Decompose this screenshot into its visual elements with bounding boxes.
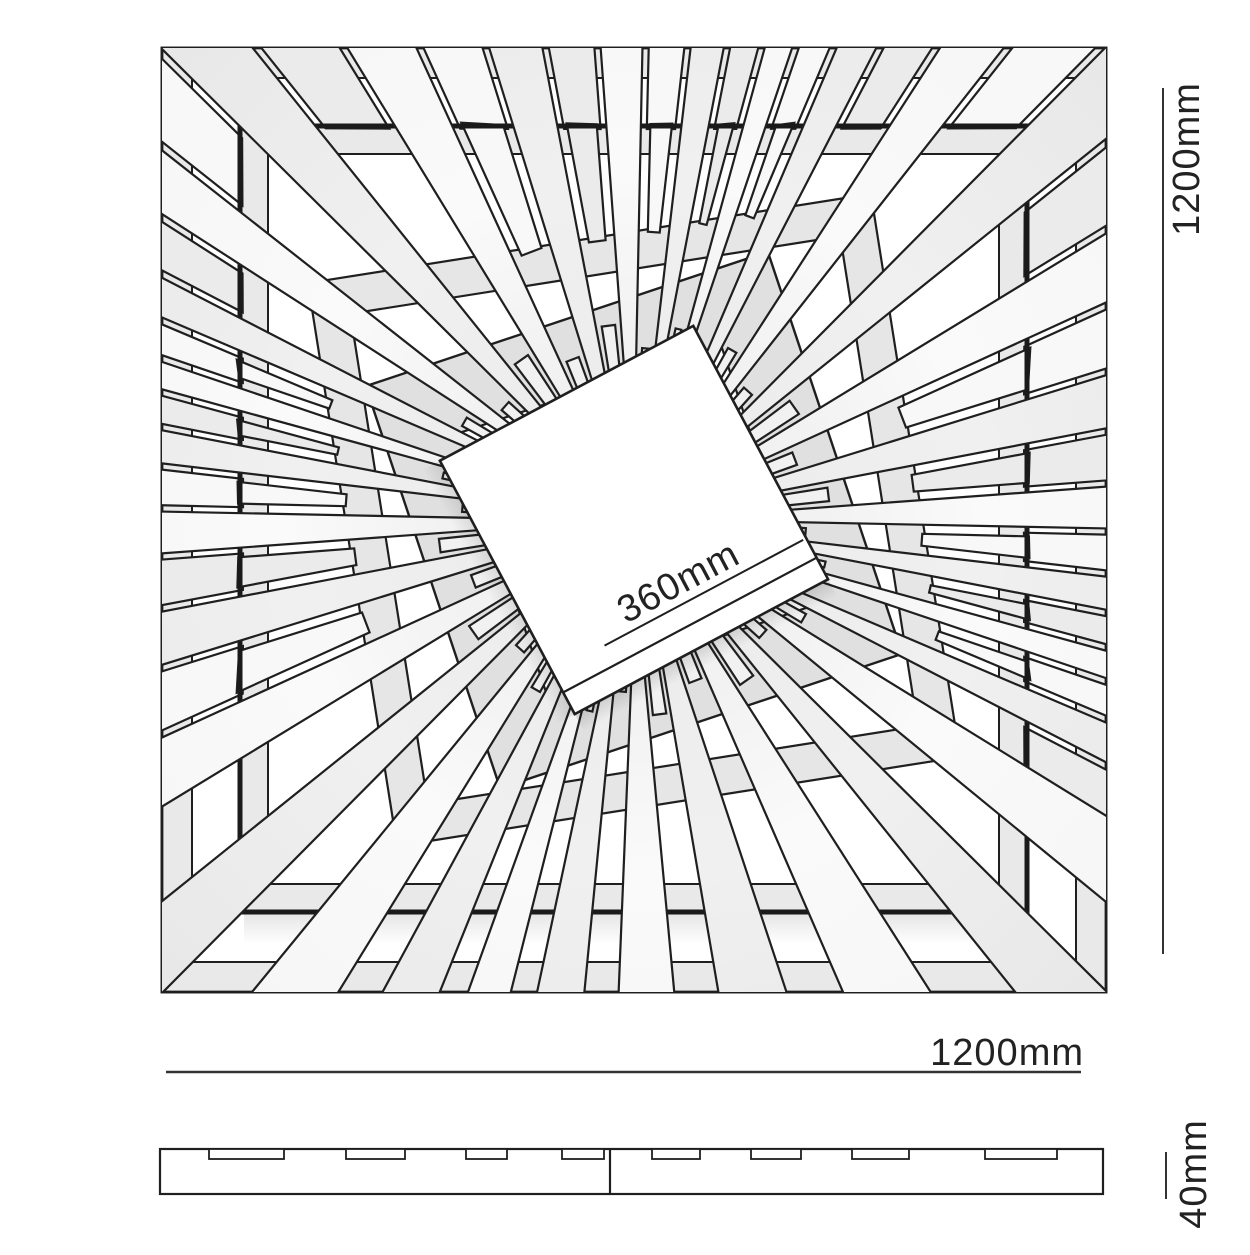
svg-text:1200mm: 1200mm — [930, 1032, 1084, 1074]
svg-text:40mm: 40mm — [1173, 1119, 1215, 1229]
svg-text:1200mm: 1200mm — [1166, 82, 1208, 236]
